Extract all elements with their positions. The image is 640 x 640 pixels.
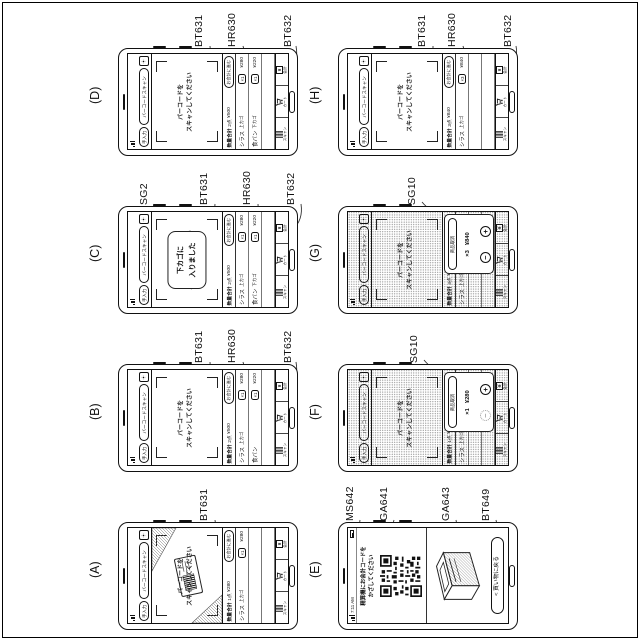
smartphone: 7:11 AM 精算機にお会計コードをかざしてください bbox=[338, 522, 518, 630]
smartphone: 手入力 バーコードスキャン バーコードをスキャンしてください 下カゴに入りました… bbox=[118, 206, 298, 314]
scan-frame-corner bbox=[156, 378, 167, 389]
volume-button[interactable] bbox=[399, 204, 412, 206]
scan-frame-corner bbox=[156, 62, 167, 73]
quantity-button[interactable]: ×1 bbox=[238, 74, 246, 84]
home-button[interactable] bbox=[289, 249, 295, 271]
basket-tag: 上カゴ bbox=[239, 432, 245, 445]
flash-button[interactable] bbox=[139, 215, 149, 225]
register-illustration bbox=[430, 529, 484, 624]
nav-scan[interactable]: スキャン bbox=[276, 119, 288, 150]
home-button[interactable] bbox=[509, 91, 515, 113]
panel-F: (F) SG10 手入力 バーコードスキャン バーコードをスキャンしてください bbox=[318, 318, 544, 476]
scan-hint: バーコードをスキャンしてください bbox=[178, 55, 197, 150]
panel-E: (E) MS642 GA641 GA643 BT649 7:11 AM 精算機に… bbox=[318, 476, 544, 634]
total-price: ¥500 bbox=[227, 423, 232, 434]
barcode-scan-tab[interactable]: バーコードスキャン bbox=[359, 69, 369, 126]
summary-label: 数量合計 bbox=[226, 128, 233, 147]
manual-input-tab[interactable]: 手入力 bbox=[139, 601, 149, 621]
signal-icon bbox=[130, 141, 136, 148]
scan-frame-corner bbox=[427, 62, 438, 73]
shelf-hatch bbox=[152, 529, 176, 572]
flash-button[interactable] bbox=[139, 531, 149, 541]
panel-label: (F) bbox=[308, 404, 322, 420]
callout-ga641: GA641 bbox=[378, 487, 390, 521]
bottom-nav: スキャン カート ¥会計 bbox=[275, 213, 288, 308]
callout-hr630: HR630 bbox=[241, 171, 253, 205]
nav-label: スキャン bbox=[284, 443, 288, 458]
quantity-button[interactable]: ×1 bbox=[251, 74, 259, 84]
checkout-button[interactable]: お会計に進む bbox=[224, 57, 234, 89]
item-count: 2点 bbox=[226, 435, 233, 442]
earpiece bbox=[343, 94, 346, 110]
status-time: 7:11 AM bbox=[350, 597, 355, 613]
empty-row bbox=[249, 529, 262, 624]
scan-frame-corner bbox=[207, 62, 218, 73]
total-price: ¥840 bbox=[447, 107, 452, 118]
nav-scan[interactable]: スキャン bbox=[276, 277, 288, 308]
callout-sg2: SG2 bbox=[138, 183, 150, 205]
cart-item-row[interactable]: シラス 上カゴ ×3 ¥840 bbox=[456, 55, 469, 150]
basket-tag: 下カゴ bbox=[252, 273, 258, 286]
remove-item-button[interactable]: 商品取消 bbox=[448, 377, 457, 429]
basket-tag: 下カゴ bbox=[252, 115, 258, 128]
barcode-scan-tab[interactable]: バーコードスキャン bbox=[139, 69, 149, 126]
summary-label: 数量合計 bbox=[446, 128, 453, 147]
power-button[interactable] bbox=[153, 204, 166, 206]
checkout-button[interactable]: お会計に進む bbox=[444, 57, 454, 89]
scan-frame-corner bbox=[156, 448, 167, 459]
cart-item-row[interactable]: 食パン ×1 ¥220 bbox=[249, 371, 262, 466]
flash-icon bbox=[141, 533, 146, 538]
screen: 7:11 AM 精算機にお会計コードをかざしてください bbox=[347, 528, 509, 625]
empty-row bbox=[262, 371, 275, 466]
callout-bt632: BT632 bbox=[285, 173, 297, 205]
panel-label: (C) bbox=[88, 245, 102, 262]
volume-button[interactable] bbox=[179, 520, 192, 522]
scan-frame-corner bbox=[207, 220, 218, 231]
scan-frame-corner bbox=[156, 290, 167, 301]
total-price: ¥280 bbox=[227, 581, 232, 592]
item-price: ¥280 bbox=[240, 531, 245, 546]
summary-label: 数量合計 bbox=[226, 286, 233, 305]
panel-D: (D) BT631 HR630 BT632 手入力 バーコードスキャン バーコー… bbox=[98, 2, 324, 160]
basket-tag: 上カゴ bbox=[459, 116, 465, 129]
callout-ms642: MS642 bbox=[344, 486, 356, 521]
volume-button[interactable] bbox=[399, 362, 412, 364]
panel-C: (C) SG2 BT631 HR630 BT632 手入力 バーコードスキャン … bbox=[98, 160, 324, 318]
screen: 手入力 バーコードスキャン バーコードをスキャンしてください 数量合計 2点 ¥… bbox=[127, 54, 289, 151]
nav-label: カート bbox=[284, 254, 288, 265]
home-button[interactable] bbox=[289, 407, 295, 429]
nav-scan[interactable]: スキャン bbox=[276, 435, 288, 466]
status-bar bbox=[128, 371, 136, 466]
flash-button[interactable] bbox=[139, 373, 149, 383]
hand-hatch bbox=[192, 596, 222, 624]
dialog-qty-price: ×1¥280 bbox=[465, 377, 471, 429]
scan-frame-corner bbox=[207, 290, 218, 301]
power-button[interactable] bbox=[373, 520, 386, 522]
callout-bt649: BT649 bbox=[480, 489, 492, 521]
callout-bt631: BT631 bbox=[193, 15, 205, 47]
quantity-button[interactable]: ×1 bbox=[251, 232, 259, 242]
basket-tag: 上カゴ bbox=[239, 590, 245, 603]
cart-item-row[interactable]: 食パン 下カゴ ×1 ¥220 bbox=[249, 55, 262, 150]
screen: 手入力 バーコードスキャン バーコードをスキャンしてください 数量合計 3点 ¥… bbox=[347, 54, 509, 151]
scan-hint: バーコードをスキャンしてください bbox=[398, 55, 417, 150]
callout-bt632: BT632 bbox=[502, 15, 514, 47]
dialog-qty: ×1 bbox=[465, 408, 471, 415]
flash-button[interactable] bbox=[359, 57, 369, 67]
screen: 手入力 バーコードスキャン バーコードをスキャンしてください 数量合計 3点 ¥… bbox=[347, 212, 509, 309]
home-button[interactable] bbox=[509, 565, 515, 587]
remove-item-button[interactable]: 商品取消 bbox=[448, 219, 457, 271]
phone-body: 手入力 バーコードスキャン バーコードをスキャンしてください 数量合計 3点 ¥… bbox=[338, 48, 518, 156]
item-count: 2点 bbox=[226, 119, 233, 126]
quantity-dialog: 商品取消 ×1¥280 − + bbox=[444, 373, 494, 433]
status-bar bbox=[128, 55, 136, 150]
item-name: 食パン bbox=[251, 289, 259, 305]
panel-G: (G) SG10 手入力 バーコードスキャン バーコードをスキャンしてください bbox=[318, 160, 544, 318]
nav-label: スキャン bbox=[284, 127, 288, 142]
quantity-button[interactable]: ×1 bbox=[238, 548, 246, 558]
scan-frame-corner bbox=[156, 220, 167, 231]
nav-label: カート bbox=[284, 96, 288, 107]
quantity-button[interactable]: ×1 bbox=[238, 390, 246, 400]
nav-label: 会計 bbox=[284, 66, 288, 73]
callout-ga643: GA643 bbox=[440, 487, 452, 521]
nav-scan[interactable]: スキャン bbox=[496, 119, 508, 150]
quantity-button[interactable]: ×3 bbox=[458, 74, 466, 84]
increment-button[interactable]: + bbox=[480, 226, 491, 237]
phone-body: 手入力 バーコードスキャン バーコードをスキャンしてください 数量合計 3点 ¥… bbox=[338, 206, 518, 314]
item-name: 食パン bbox=[251, 447, 259, 463]
panel-label: (D) bbox=[88, 87, 102, 104]
nav-label: 会計 bbox=[284, 224, 288, 231]
item-name: シラス bbox=[458, 131, 466, 147]
screen: 手入力 バーコードスキャン bbox=[127, 528, 289, 625]
item-price: ¥220 bbox=[253, 57, 258, 72]
quantity-button[interactable]: ×1 bbox=[238, 232, 246, 242]
cart-summary-row: 数量合計 1点 ¥280 お会計に進む bbox=[223, 529, 236, 624]
nav-label: 会計 bbox=[284, 382, 288, 389]
camera-viewport: バーコードをスキャンしてください bbox=[371, 55, 443, 150]
item-count: 2点 bbox=[226, 277, 233, 284]
nav-cart[interactable]: カート bbox=[276, 403, 288, 435]
nav-label: 会計 bbox=[284, 540, 288, 547]
earpiece bbox=[123, 252, 126, 268]
cart-item-row[interactable]: シラス 上カゴ ×1 ¥280 bbox=[236, 529, 249, 624]
callout-bt631: BT631 bbox=[193, 331, 205, 363]
cart-item-row[interactable]: シラス 上カゴ ×1 ¥280 bbox=[236, 213, 249, 308]
smartphone: 手入力 バーコードスキャン バーコードをスキャンしてください 数量合計 3点 ¥… bbox=[338, 48, 518, 156]
back-to-shopping-button[interactable]: < 買い物に戻る bbox=[491, 538, 504, 615]
scan-frame-corner bbox=[427, 132, 438, 143]
status-bar bbox=[128, 529, 136, 624]
basket-toast: 下カゴに入りました bbox=[167, 231, 206, 289]
phone-body: 手入力 バーコードスキャン バーコードをスキャンしてください 数量合計 2点 ¥… bbox=[118, 364, 298, 472]
earpiece bbox=[123, 568, 126, 584]
dialog-price: ¥280 bbox=[465, 390, 471, 403]
quantity-button[interactable]: ×1 bbox=[251, 390, 259, 400]
empty-row bbox=[262, 529, 275, 624]
phone-body: 手入力 バーコードスキャン バーコードをスキャンしてください 数量合計 1点 ¥… bbox=[338, 364, 518, 472]
camera-viewport: バーコードをスキャンしてください bbox=[151, 371, 223, 466]
manual-input-tab[interactable]: 手入力 bbox=[359, 127, 369, 147]
smartphone: 手入力 バーコードスキャン bbox=[118, 522, 298, 630]
increment-button[interactable]: + bbox=[480, 384, 491, 395]
screen: 手入力 バーコードスキャン バーコードをスキャンしてください 下カゴに入りました… bbox=[127, 212, 289, 309]
scan-frame-corner bbox=[207, 132, 218, 143]
volume-button[interactable] bbox=[179, 362, 192, 364]
empty-row bbox=[262, 213, 275, 308]
scan-header: 手入力 バーコードスキャン bbox=[136, 213, 151, 308]
flash-icon bbox=[141, 375, 146, 380]
cart-item-row[interactable]: 食パン 下カゴ ×1 ¥220 bbox=[249, 213, 262, 308]
earpiece bbox=[123, 410, 126, 426]
cart-list: 数量合計 2点 ¥500 お会計に進む シラス 上カゴ ×1 ¥280 食パン … bbox=[223, 55, 275, 150]
checkout-button[interactable]: お会計に進む bbox=[224, 215, 234, 247]
smartphone: 手入力 バーコードスキャン バーコードをスキャンしてください 数量合計 1点 ¥… bbox=[338, 364, 518, 472]
barcode-scan-tab[interactable]: バーコードスキャン bbox=[139, 227, 149, 284]
earpiece bbox=[343, 252, 346, 268]
earpiece bbox=[123, 94, 126, 110]
nav-label: スキャン bbox=[284, 601, 288, 616]
smartphone: 手入力 バーコードスキャン バーコードをスキャンしてください 数量合計 2点 ¥… bbox=[118, 364, 298, 472]
empty-row bbox=[482, 55, 495, 150]
scan-header: 手入力 バーコードスキャン bbox=[356, 55, 371, 150]
item-name: シラス bbox=[238, 605, 246, 621]
item-price: ¥280 bbox=[240, 373, 245, 388]
bottom-nav: スキャン カート ¥会計 bbox=[275, 371, 288, 466]
battery-icon bbox=[350, 531, 354, 539]
scan-hint: バーコードをスキャンしてください bbox=[178, 529, 197, 624]
nav-pay[interactable]: ¥会計 bbox=[276, 371, 288, 403]
scan-frame-corner bbox=[207, 378, 218, 389]
screen: 手入力 バーコードスキャン バーコードをスキャンしてください 数量合計 1点 ¥… bbox=[347, 370, 509, 467]
scan-header: 手入力 バーコードスキャン bbox=[136, 371, 151, 466]
dialog-qty: ×3 bbox=[465, 250, 471, 257]
volume-button[interactable] bbox=[399, 520, 412, 522]
item-name: シラス bbox=[238, 289, 246, 305]
earpiece bbox=[343, 410, 346, 426]
empty-row bbox=[469, 55, 482, 150]
item-price: ¥840 bbox=[460, 57, 465, 72]
callout-hr630: HR630 bbox=[226, 329, 238, 363]
phone-body: 7:11 AM 精算機にお会計コードをかざしてください bbox=[338, 522, 518, 630]
scan-frame-corner bbox=[376, 132, 387, 143]
screen: 手入力 バーコードスキャン バーコードをスキャンしてください 数量合計 2点 ¥… bbox=[127, 370, 289, 467]
scan-header: 手入力 バーコードスキャン bbox=[136, 55, 151, 150]
basket-tag: 上カゴ bbox=[239, 274, 245, 287]
volume-button[interactable] bbox=[179, 46, 192, 48]
phone-body: 手入力 バーコードスキャン バーコードをスキャンしてください 下カゴに入りました… bbox=[118, 206, 298, 314]
signal-icon bbox=[349, 615, 355, 622]
manual-input-tab[interactable]: 手入力 bbox=[139, 443, 149, 463]
item-name: シラス bbox=[238, 447, 246, 463]
barcode-scan-tab[interactable]: バーコードスキャン bbox=[139, 385, 149, 442]
earpiece bbox=[343, 568, 346, 584]
camera-viewport: バーコードをスキャンしてください bbox=[151, 529, 223, 624]
smartphone: 手入力 バーコードスキャン バーコードをスキャンしてください 数量合計 3点 ¥… bbox=[338, 206, 518, 314]
panel-A: (A) BT631 手入力 バーコードスキャン bbox=[98, 476, 324, 634]
item-name: シラス bbox=[238, 131, 246, 147]
item-price: ¥220 bbox=[253, 373, 258, 388]
status-bar bbox=[128, 213, 136, 308]
checkout-button[interactable]: お会計に進む bbox=[224, 531, 234, 563]
nav-cart[interactable]: カート bbox=[496, 87, 508, 119]
basket-tag: 上カゴ bbox=[239, 116, 245, 129]
power-button[interactable] bbox=[373, 362, 386, 364]
status-bar: 7:11 AM bbox=[348, 529, 357, 624]
camera-viewport: バーコードをスキャンしてください bbox=[151, 55, 223, 150]
nav-pay[interactable]: ¥会計 bbox=[496, 55, 508, 87]
panel-H: (H) BT631 HR630 BT632 手入力 バーコードスキャン バーコー… bbox=[318, 2, 544, 160]
home-button[interactable] bbox=[509, 407, 515, 429]
home-button[interactable] bbox=[289, 91, 295, 113]
dialog-price: ¥840 bbox=[465, 232, 471, 245]
callout-hr630: HR630 bbox=[226, 13, 238, 47]
nav-cart[interactable]: カート bbox=[276, 561, 288, 593]
panel-label: (B) bbox=[88, 403, 102, 420]
volume-button[interactable] bbox=[399, 46, 412, 48]
manual-input-tab[interactable]: 手入力 bbox=[139, 285, 149, 305]
callout-bt631: BT631 bbox=[416, 15, 428, 47]
panel-B: (B) BT631 HR630 BT632 手入力 バーコードスキャン バーコー… bbox=[98, 318, 324, 476]
nav-pay[interactable]: ¥会計 bbox=[276, 55, 288, 87]
cart-summary-row: 数量合計 3点 ¥840 お会計に進む bbox=[443, 55, 456, 150]
checkout-code-section bbox=[380, 529, 427, 624]
item-price: ¥280 bbox=[240, 215, 245, 230]
nav-scan[interactable]: スキャン bbox=[276, 593, 288, 624]
scan-header: 手入力 バーコードスキャン bbox=[136, 529, 151, 624]
decrement-button-disabled[interactable]: − bbox=[480, 410, 491, 421]
item-count: 3点 bbox=[446, 119, 453, 126]
summary-label: 数量合計 bbox=[226, 602, 233, 621]
volume-button[interactable] bbox=[179, 204, 192, 206]
barcode-scan-tab[interactable]: バーコードスキャン bbox=[139, 543, 149, 600]
cart-list: 数量合計 1点 ¥280 お会計に進む シラス 上カゴ ×1 ¥280 bbox=[223, 529, 275, 624]
nav-pay[interactable]: ¥会計 bbox=[276, 529, 288, 561]
panel-label: (G) bbox=[308, 244, 322, 262]
nav-label: スキャン bbox=[284, 285, 288, 300]
signal-icon bbox=[350, 141, 356, 148]
checkout-machine-icon bbox=[430, 537, 484, 615]
cart-item-row[interactable]: シラス 上カゴ ×1 ¥280 bbox=[236, 371, 249, 466]
total-price: ¥500 bbox=[227, 265, 232, 276]
nav-label: カート bbox=[284, 570, 288, 581]
callout-bt632: BT632 bbox=[282, 15, 294, 47]
quantity-dialog: 商品取消 ×3¥840 − + bbox=[444, 215, 494, 275]
scan-frame-corner bbox=[207, 448, 218, 459]
callout-hr630: HR630 bbox=[446, 13, 458, 47]
panel-label: (A) bbox=[88, 561, 102, 578]
flash-icon bbox=[141, 217, 146, 222]
item-price: ¥220 bbox=[253, 215, 258, 230]
power-button[interactable] bbox=[373, 204, 386, 206]
cart-list: 数量合計 2点 ¥500 お会計に進む シラス 上カゴ ×1 ¥280 食パン … bbox=[223, 213, 275, 308]
signal-icon bbox=[130, 299, 136, 306]
power-button[interactable] bbox=[153, 46, 166, 48]
item-name: 食パン bbox=[251, 131, 259, 147]
callout-sg10: SG10 bbox=[406, 177, 418, 205]
scan-hint: バーコードをスキャンしてください bbox=[178, 371, 197, 466]
flash-icon bbox=[141, 59, 146, 64]
callout-bt632: BT632 bbox=[282, 331, 294, 363]
nav-label: カート bbox=[284, 412, 288, 423]
checkout-button[interactable]: お会計に進む bbox=[224, 373, 234, 405]
nav-label: 会計 bbox=[504, 66, 508, 73]
smartphone: 手入力 バーコードスキャン バーコードをスキャンしてください 数量合計 2点 ¥… bbox=[118, 48, 298, 156]
cart-summary-row: 数量合計 2点 ¥500 お会計に進む bbox=[223, 213, 236, 308]
bottom-nav: スキャン カート ¥会計 bbox=[275, 529, 288, 624]
bottom-nav: スキャン カート ¥会計 bbox=[495, 55, 508, 150]
bottom-nav: スキャン カート ¥会計 bbox=[275, 55, 288, 150]
cart-list: 数量合計 2点 ¥500 お会計に進む シラス 上カゴ ×1 ¥280 食パン bbox=[223, 371, 275, 466]
panel-label: (H) bbox=[308, 87, 322, 104]
home-button[interactable] bbox=[289, 565, 295, 587]
camera-viewport: バーコードをスキャンしてください 下カゴに入りました bbox=[151, 213, 223, 308]
callout-bt631: BT631 bbox=[198, 489, 210, 521]
nav-cart[interactable]: カート bbox=[276, 87, 288, 119]
home-button[interactable] bbox=[509, 249, 515, 271]
power-button[interactable] bbox=[153, 362, 166, 364]
empty-row bbox=[262, 55, 275, 150]
phone-body: 手入力 バーコードスキャン bbox=[118, 522, 298, 630]
cart-list: 数量合計 3点 ¥840 お会計に進む シラス 上カゴ ×3 ¥840 bbox=[443, 55, 495, 150]
nav-label: カート bbox=[504, 96, 508, 107]
signal-icon bbox=[130, 615, 136, 622]
power-button[interactable] bbox=[373, 46, 386, 48]
nav-pay[interactable]: ¥会計 bbox=[276, 213, 288, 245]
status-bar bbox=[348, 55, 356, 150]
dialog-qty-price: ×3¥840 bbox=[465, 219, 471, 271]
checkout-code-message: 精算機にお会計コードをかざしてください bbox=[360, 529, 377, 624]
signal-icon bbox=[130, 457, 136, 464]
item-price: ¥280 bbox=[240, 57, 245, 72]
nav-cart[interactable]: カート bbox=[276, 245, 288, 277]
manual-input-tab[interactable]: 手入力 bbox=[139, 127, 149, 147]
item-count: 1点 bbox=[226, 593, 233, 600]
flash-icon bbox=[361, 59, 366, 64]
cart-summary-row: 数量合計 2点 ¥500 お会計に進む bbox=[223, 55, 236, 150]
decrement-button[interactable]: − bbox=[480, 252, 491, 263]
phone-body: 手入力 バーコードスキャン バーコードをスキャンしてください 数量合計 2点 ¥… bbox=[118, 48, 298, 156]
cart-summary-row: 数量合計 2点 ¥500 お会計に進む bbox=[223, 371, 236, 466]
callout-bt631: BT631 bbox=[198, 173, 210, 205]
flash-button[interactable] bbox=[139, 57, 149, 67]
total-price: ¥500 bbox=[227, 107, 232, 118]
scan-frame-corner bbox=[156, 132, 167, 143]
callout-sg10: SG10 bbox=[408, 335, 420, 363]
scan-frame-corner bbox=[376, 62, 387, 73]
qr-code bbox=[380, 555, 422, 597]
panel-label: (E) bbox=[308, 561, 322, 578]
nav-label: スキャン bbox=[504, 127, 508, 142]
power-button[interactable] bbox=[153, 520, 166, 522]
cart-item-row[interactable]: シラス 上カゴ ×1 ¥280 bbox=[236, 55, 249, 150]
summary-label: 数量合計 bbox=[226, 444, 233, 463]
